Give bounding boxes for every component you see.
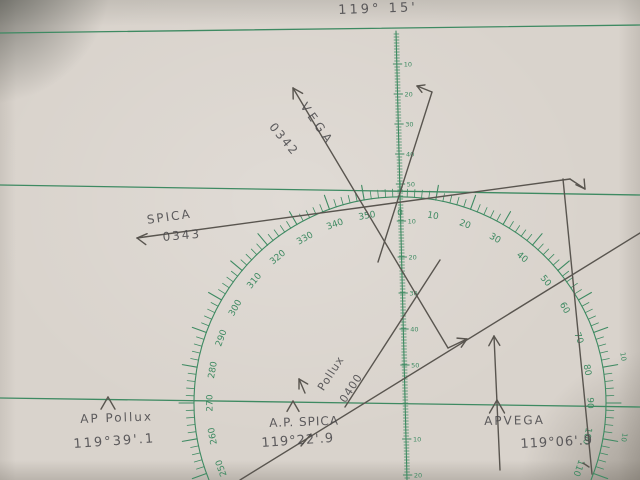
spica-lop-arrowhead <box>137 238 146 245</box>
rose-tick <box>509 222 513 229</box>
edge-scale-label: 10 <box>619 432 628 442</box>
rose-tick <box>605 425 613 426</box>
mid-scale-label: 20 <box>409 253 417 261</box>
rose-label: 290 <box>214 328 229 348</box>
rose-tick <box>601 446 609 448</box>
rose-tick <box>324 195 329 209</box>
mid-scale-label: 20 <box>405 90 413 98</box>
rose-tick <box>241 260 247 265</box>
rose-tick <box>450 195 452 203</box>
rose-label: 260 <box>207 426 220 445</box>
second-line-arrowhead <box>417 85 425 86</box>
rose-tick <box>209 293 222 301</box>
vega-lop-line <box>563 179 592 474</box>
rose-tick <box>532 234 542 245</box>
rose-tick <box>257 244 262 250</box>
rose-tick <box>515 226 519 233</box>
rose-tick <box>600 351 608 353</box>
edge-scale-label: 10 <box>618 352 627 362</box>
rose-tick <box>192 351 200 353</box>
rose-label: 310 <box>245 271 264 291</box>
rose-tick <box>596 467 604 469</box>
rose-tick <box>503 212 511 225</box>
rose-tick <box>191 446 199 448</box>
rose-label: 20 <box>458 218 472 231</box>
rose-tick <box>187 425 195 426</box>
rose-label: 280 <box>207 361 220 380</box>
rose-label: 110 <box>570 458 585 478</box>
rose-tick <box>188 432 196 433</box>
rose-tick <box>219 290 226 294</box>
mid-scale-label: 30 <box>405 120 413 128</box>
mid-scale-label: 10 <box>413 435 421 443</box>
rose-tick <box>246 254 252 260</box>
rose-tick <box>601 359 609 361</box>
vega-line-return-arrowhead <box>457 338 467 339</box>
rose-tick <box>464 199 466 207</box>
edge-scale: 1010 <box>618 352 628 443</box>
rose-label: 250 <box>214 458 229 478</box>
rose-tick <box>280 226 284 233</box>
rose-label: 40 <box>514 250 529 265</box>
rose-tick <box>605 417 613 418</box>
rose-tick <box>591 323 598 326</box>
rose-label: 50 <box>538 274 553 289</box>
mid-scale-label: 10 <box>408 217 416 225</box>
rose-tick <box>211 303 218 307</box>
mid-longitude-scale: 102030405010203040501020 <box>393 31 422 480</box>
rose-tick <box>575 290 582 294</box>
rose-tick <box>320 205 323 212</box>
rose-tick <box>484 208 487 215</box>
top-longitude-label: 119° 15' <box>338 0 418 18</box>
rose-tick <box>604 373 612 374</box>
rose-tick <box>202 323 209 326</box>
rose-tick <box>603 439 618 442</box>
rose-tick <box>543 249 549 255</box>
rose-tick <box>287 222 291 229</box>
rose-tick <box>251 249 257 255</box>
rose-tick <box>188 373 196 374</box>
rose-tick <box>490 211 494 218</box>
rose-tick <box>274 230 279 236</box>
rose-tick <box>258 234 268 245</box>
rose-tick <box>538 244 543 250</box>
mid-scale-label: 50 <box>411 361 419 369</box>
rose-tick <box>585 309 592 313</box>
chart-drawing: 2502602702802903003103203303403500102030… <box>0 0 640 480</box>
latitude-line-middle <box>0 185 640 195</box>
rose-tick <box>521 230 526 236</box>
rose-tick <box>588 316 595 319</box>
rose-tick <box>192 453 200 455</box>
rose-tick <box>231 261 242 271</box>
rose-tick <box>414 190 415 198</box>
rose-tick <box>527 234 532 240</box>
rose-tick <box>548 254 554 260</box>
rose-tick <box>497 214 501 221</box>
ap-vega-label: APVEGA <box>484 413 545 428</box>
rose-label: 30 <box>487 232 502 247</box>
rose-tick <box>470 195 475 209</box>
plotting-sheet-photo: 2502602702802903003103203303403500102030… <box>0 0 640 480</box>
rose-tick <box>578 293 591 301</box>
rose-label: 10 <box>426 210 439 222</box>
second-azimuth-line <box>378 92 432 262</box>
mid-scale-label: 50 <box>407 180 415 188</box>
rose-tick <box>600 453 608 455</box>
rose-tick <box>348 195 350 203</box>
rose-tick <box>594 473 608 478</box>
ap-pollux-caret <box>108 397 115 409</box>
rose-tick <box>196 337 204 339</box>
rose-label: 300 <box>227 298 244 318</box>
rose-tick <box>231 271 237 276</box>
rose-tick <box>334 199 336 207</box>
spica-lop-end-arrowhead <box>584 179 585 189</box>
rose-label: 60 <box>557 301 572 316</box>
rose-label: 320 <box>268 248 288 267</box>
rose-label: 340 <box>325 217 345 232</box>
rose-tick <box>191 359 199 361</box>
latitude-line-bottom <box>0 398 640 407</box>
rose-tick <box>370 191 371 199</box>
rose-tick <box>553 260 559 265</box>
mid-scale-label: 20 <box>414 471 422 479</box>
rose-tick <box>582 303 589 307</box>
latitude-lines <box>0 25 640 407</box>
rose-tick <box>594 327 608 332</box>
rose-tick <box>192 327 206 332</box>
pencil-plot-lines <box>101 85 640 480</box>
rose-tick <box>605 388 613 389</box>
rose-tick <box>187 417 195 418</box>
rose-tick <box>182 365 197 368</box>
rose-tick <box>443 194 445 202</box>
rose-tick <box>290 212 298 225</box>
rose-tick <box>596 337 604 339</box>
rose-tick <box>208 309 215 313</box>
rose-tick <box>477 205 480 212</box>
rose-tick <box>196 467 204 469</box>
mid-scale-label: 40 <box>410 325 418 333</box>
rose-tick <box>268 234 273 240</box>
ap-vega-caret <box>497 400 505 413</box>
rose-tick <box>603 365 618 368</box>
rose-tick <box>187 381 195 382</box>
rose-tick <box>194 460 202 462</box>
rose-tick <box>223 283 230 287</box>
rose-tick <box>182 439 197 442</box>
rose-tick <box>341 197 343 205</box>
rose-tick <box>605 381 613 382</box>
mid-scale-line <box>396 31 407 480</box>
rose-tick <box>598 344 606 346</box>
rose-tick <box>558 261 569 271</box>
mid-scale-label: 10 <box>404 60 412 68</box>
rose-tick <box>194 344 202 346</box>
rose-tick <box>192 473 206 478</box>
ap-vega-caret <box>490 400 498 413</box>
ap-pollux-label: AP Pollux <box>80 409 153 426</box>
ap-spica-label: A.P. SPICA <box>269 414 339 430</box>
rose-label: 270 <box>206 394 216 411</box>
rose-tick <box>227 277 233 282</box>
rose-label: 330 <box>295 230 315 247</box>
latitude-line-top <box>0 25 640 33</box>
rose-tick <box>187 388 195 389</box>
rose-tick <box>562 271 568 276</box>
rose-tick <box>385 190 386 198</box>
rose-tick <box>205 316 212 319</box>
rose-tick <box>457 197 459 205</box>
rose-tick <box>604 432 612 433</box>
vega-azimuth-arrowhead <box>489 336 494 346</box>
rose-tick <box>598 460 606 462</box>
rose-tick <box>362 185 365 200</box>
